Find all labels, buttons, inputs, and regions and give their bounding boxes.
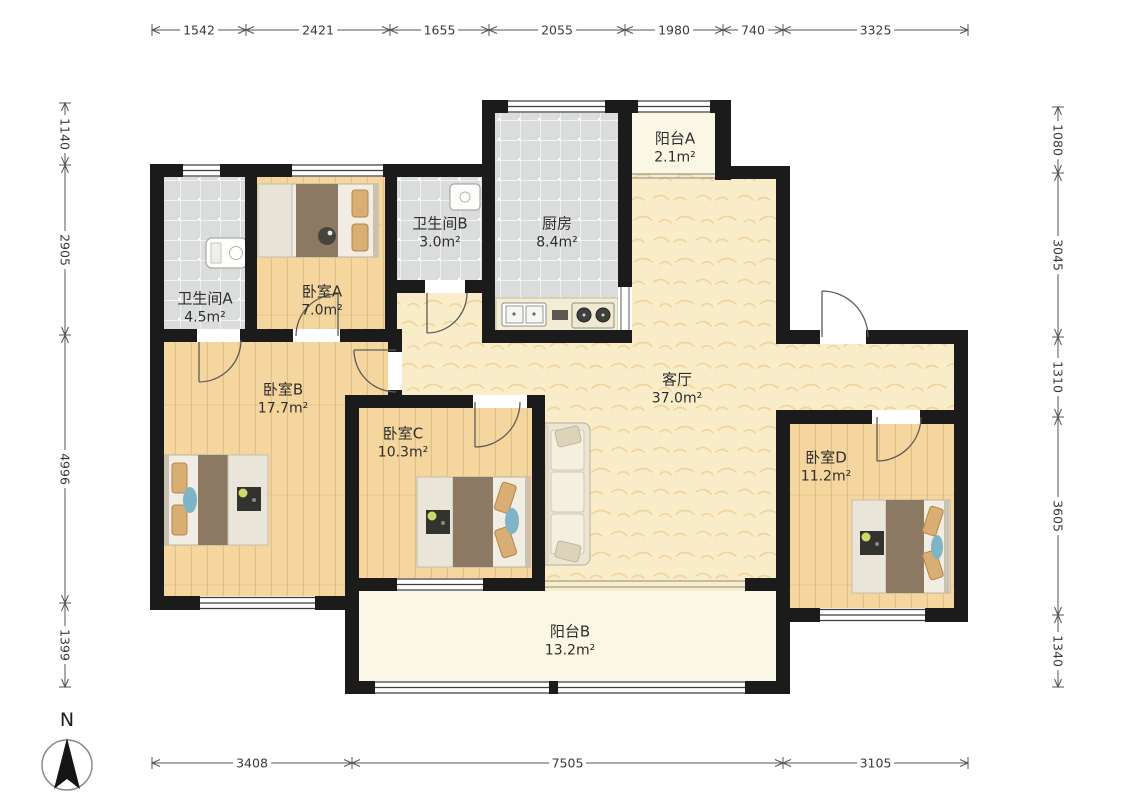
window [397, 578, 483, 591]
door-entry [820, 291, 868, 344]
hob-control-icon [552, 310, 568, 320]
dim-label-left-2: 4996 [58, 450, 73, 488]
room-area: 2.1m² [654, 149, 696, 168]
dim-chain-right [1052, 107, 1064, 687]
washer-icon [206, 238, 247, 268]
dim-label-bottom-1: 7505 [549, 756, 587, 771]
room-label-bedroom-c: 卧室C 10.3m² [378, 423, 428, 462]
dim-label-right-1: 3045 [1051, 236, 1066, 274]
room-area: 8.4m² [536, 234, 578, 253]
dim-label-bottom-2: 3105 [857, 756, 895, 771]
north-arrow [42, 738, 92, 790]
dim-label-left-0: 1140 [58, 115, 73, 153]
dim-label-bottom-0: 3408 [233, 756, 271, 771]
bed-bedroom-d [852, 500, 950, 593]
window [638, 100, 710, 113]
floor-plan: 卫生间A 4.5m² 卧室A 7.0m² 卫生间B 3.0m² 厨房 8.4m²… [0, 0, 1125, 800]
room-label-kitchen: 厨房 8.4m² [536, 213, 578, 252]
room-name: 阳台A [654, 128, 696, 148]
room-name: 厨房 [536, 213, 578, 233]
dim-label-left-1: 2905 [58, 231, 73, 269]
room-label-bedroom-b: 卧室B 17.7m² [258, 379, 308, 418]
window [200, 596, 315, 610]
kitchen-counter [496, 298, 618, 331]
room-area: 7.0m² [301, 302, 343, 321]
window [508, 100, 605, 113]
window [375, 681, 745, 694]
room-name: 卧室C [378, 423, 428, 443]
bedside-lamp-icon [318, 227, 336, 245]
room-label-balcony-a: 阳台A 2.1m² [654, 128, 696, 167]
dim-label-top-1: 2421 [299, 23, 337, 38]
floor-plan-graphic [0, 0, 1125, 800]
dim-label-right-4: 1340 [1051, 632, 1066, 670]
room-area: 11.2m² [801, 468, 851, 487]
room-name: 卫生间B [412, 213, 467, 233]
dim-label-right-0: 1080 [1051, 121, 1066, 159]
window [183, 164, 220, 177]
room-name: 卧室A [301, 281, 343, 301]
bed-bedroom-b [164, 455, 268, 545]
basin-icon [450, 184, 480, 210]
dim-label-top-3: 2055 [538, 23, 576, 38]
bed-bedroom-a [258, 184, 378, 257]
room-name: 阳台B [545, 621, 595, 641]
room-label-living-room: 客厅 37.0m² [652, 369, 702, 408]
north-label: N [60, 709, 74, 731]
room-name: 卫生间A [177, 288, 232, 308]
room-label-bathroom-a: 卫生间A 4.5m² [177, 288, 232, 327]
room-label-bathroom-b: 卫生间B 3.0m² [412, 213, 467, 252]
dim-label-top-6: 3325 [857, 23, 895, 38]
room-name: 卧室D [801, 447, 851, 467]
dim-label-top-4: 1980 [655, 23, 693, 38]
room-area: 3.0m² [412, 234, 467, 253]
room-label-bedroom-a: 卧室A 7.0m² [301, 281, 343, 320]
room-area: 17.7m² [258, 400, 308, 419]
door-kitchen-slider [618, 287, 632, 330]
room-name: 客厅 [652, 369, 702, 389]
dim-label-left-3: 1399 [58, 626, 73, 664]
bed-bedroom-c [417, 477, 530, 567]
dim-label-right-2: 1310 [1051, 358, 1066, 396]
room-label-balcony-b: 阳台B 13.2m² [545, 621, 595, 660]
dim-label-right-3: 3605 [1051, 497, 1066, 535]
room-name: 卧室B [258, 379, 308, 399]
stove-icon [572, 303, 614, 328]
room-area: 10.3m² [378, 444, 428, 463]
room-area: 4.5m² [177, 309, 232, 328]
dim-label-top-2: 1655 [421, 23, 459, 38]
room-area: 37.0m² [652, 390, 702, 409]
room-area: 13.2m² [545, 642, 595, 661]
dim-label-top-0: 1542 [180, 23, 218, 38]
room-label-bedroom-d: 卧室D 11.2m² [801, 447, 851, 486]
window [292, 164, 383, 177]
window [820, 608, 925, 622]
dim-chain-left [59, 103, 71, 687]
dim-label-top-5: 740 [738, 23, 768, 38]
